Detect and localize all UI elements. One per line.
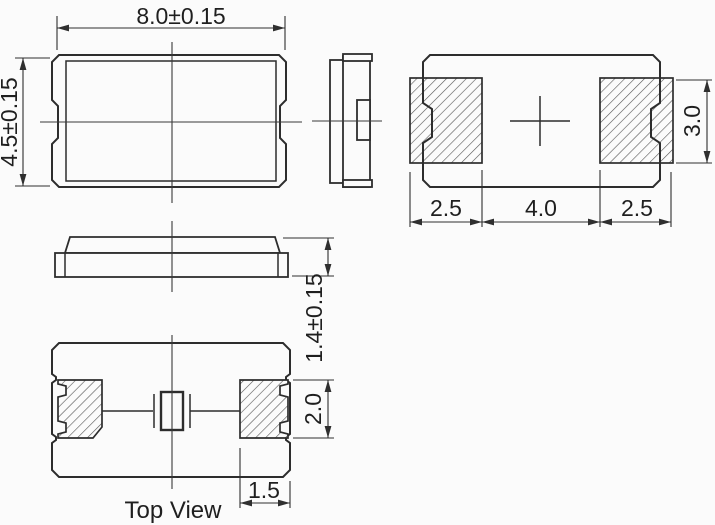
extension-line	[283, 238, 334, 276]
side-view	[312, 54, 382, 187]
top-electrode-left	[58, 380, 102, 438]
dim-label-body-width: 8.0±0.15	[136, 3, 225, 29]
side-terminal	[357, 100, 370, 140]
center-mark	[510, 96, 570, 146]
top-electrode-right	[240, 380, 288, 438]
side-top-flange	[343, 54, 372, 61]
dim-label-pad-gap: 4.0	[525, 195, 557, 221]
top-view: 2.0 1.5 Top View	[52, 335, 334, 524]
side-bottom-flange	[343, 180, 372, 187]
plan-view: 8.0±0.15 4.5±0.15	[0, 3, 302, 203]
dim-label-right-pad-width: 2.5	[621, 195, 653, 221]
plan-body-outline	[52, 55, 286, 187]
dim-label-thickness: 1.4±0.15	[301, 273, 327, 362]
technical-drawing: 8.0±0.15 4.5±0.15 2.5 4.0 2.5 3.0	[0, 0, 715, 525]
front-view: 1.4±0.15	[55, 221, 334, 363]
dim-label-body-height: 4.5±0.15	[0, 77, 22, 166]
dim-label-pad-height: 3.0	[679, 105, 705, 137]
top-view-label: Top View	[125, 497, 223, 524]
land-pattern-view: 2.5 4.0 2.5 3.0	[410, 55, 712, 227]
dim-label-electrode-width: 1.5	[248, 477, 280, 503]
plan-lid-edge	[66, 61, 276, 181]
land-pad-right	[600, 78, 673, 163]
land-pad-left	[410, 78, 482, 163]
dim-label-electrode-length: 2.0	[300, 393, 326, 425]
dim-label-left-pad-width: 2.5	[430, 195, 462, 221]
